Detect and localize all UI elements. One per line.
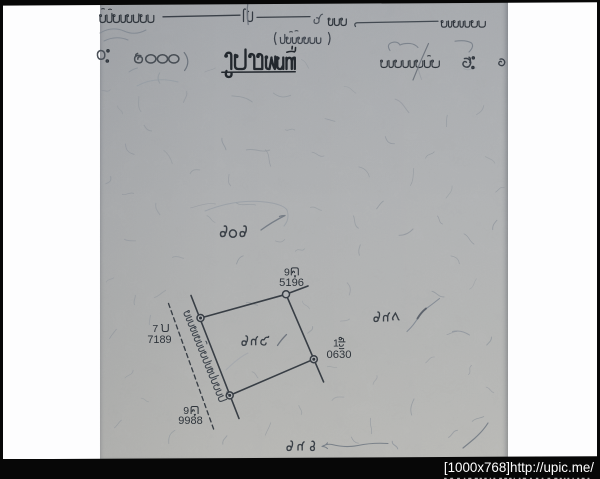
svg-text:5196: 5196: [279, 277, 304, 289]
svg-text:9988: 9988: [178, 415, 202, 427]
svg-text:1: 1: [333, 337, 339, 349]
svg-text:7189: 7189: [147, 334, 171, 346]
svg-text:0630: 0630: [327, 349, 352, 361]
svg-text:7: 7: [152, 323, 158, 335]
